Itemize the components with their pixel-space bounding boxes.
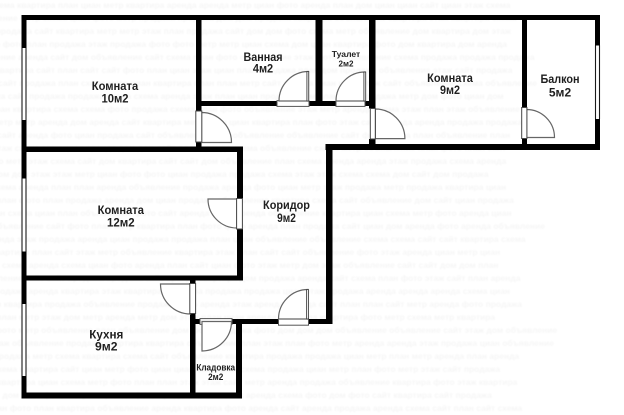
svg-text:циан схема аренда план пла: циан схема аренда план план аренда объяв… bbox=[0, 182, 506, 192]
svg-text:циан продажа метр схема кв: циан продажа метр схема квартира схема с… bbox=[0, 351, 519, 361]
svg-text:план схема циан план объяв: план схема циан план объявление фото сай… bbox=[0, 208, 512, 218]
svg-text:9м2: 9м2 bbox=[277, 211, 296, 225]
svg-text:метр схема квартира сайт ц: метр схема квартира сайт циан метр фото … bbox=[0, 364, 500, 374]
svg-text:метр фото метр объявление: метр фото метр объявление план объявлени… bbox=[0, 325, 557, 335]
svg-text:фото метр этаж схема сайт: фото метр этаж схема сайт дом квартира с… bbox=[0, 156, 507, 166]
svg-text:Кладовка: Кладовка bbox=[196, 362, 236, 372]
svg-text:12м2: 12м2 bbox=[107, 216, 135, 230]
svg-text:9м2: 9м2 bbox=[440, 83, 460, 97]
svg-text:метр дом дом этаж этаж ме: метр дом дом этаж этаж метр циан фото фо… bbox=[0, 169, 489, 179]
svg-text:метр аренда этаж продажа а: метр аренда этаж продажа аренда циан про… bbox=[0, 234, 526, 244]
svg-text:схема квартира циан схема: схема квартира циан схема метр фото план… bbox=[0, 377, 518, 387]
svg-text:фото схема аренда схема ци: фото схема аренда схема циан фото аренда… bbox=[0, 260, 498, 270]
svg-text:дом план фото план продажа: дом план фото план продажа аренда дом ци… bbox=[0, 195, 514, 205]
svg-text:10м2: 10м2 bbox=[102, 91, 129, 105]
svg-text:дом этаж объявление продажа: дом этаж объявление продажа квартира ква… bbox=[0, 338, 554, 348]
svg-text:план продажа аренда квартир: план продажа аренда квартира этаж кварти… bbox=[0, 286, 510, 296]
svg-text:схема квартира план циан м: схема квартира план циан метр квартира а… bbox=[0, 0, 511, 10]
svg-text:2м2: 2м2 bbox=[339, 59, 354, 69]
svg-text:Туалет: Туалет bbox=[332, 49, 361, 59]
svg-text:4м2: 4м2 bbox=[253, 61, 274, 75]
svg-text:план фото план квартира об: план фото план квартира объявление аренд… bbox=[0, 403, 523, 413]
svg-text:9м2: 9м2 bbox=[95, 340, 118, 354]
svg-text:схема сайт аренда фото циа: схема сайт аренда фото циан продажа сайт… bbox=[0, 130, 510, 140]
svg-text:метр метр метр аренда дом: метр метр метр аренда дом аренда сайт кв… bbox=[0, 117, 522, 127]
svg-text:Балкон: Балкон bbox=[540, 72, 579, 86]
svg-text:5м2: 5м2 bbox=[549, 85, 572, 99]
svg-text:2м2: 2м2 bbox=[208, 372, 223, 382]
svg-text:Коридор: Коридор bbox=[263, 198, 310, 212]
svg-text:фото объявление сайт фото: фото объявление сайт фото план метр квар… bbox=[0, 221, 545, 231]
svg-text:циан квартира продажа объяв: циан квартира продажа объявление продажа… bbox=[0, 299, 522, 309]
svg-text:метр фото план продажа эта: метр фото план продажа этаж продажа фото… bbox=[0, 39, 507, 49]
svg-text:циан продажа сайт квартира: циан продажа сайт квартира метр метр эта… bbox=[0, 26, 512, 36]
svg-text:продажа сайт продажа продаж: продажа сайт продажа продажа схема схема… bbox=[0, 91, 504, 101]
svg-text:схема квартира план сайт э: схема квартира план сайт этаж метр объяв… bbox=[0, 247, 500, 257]
